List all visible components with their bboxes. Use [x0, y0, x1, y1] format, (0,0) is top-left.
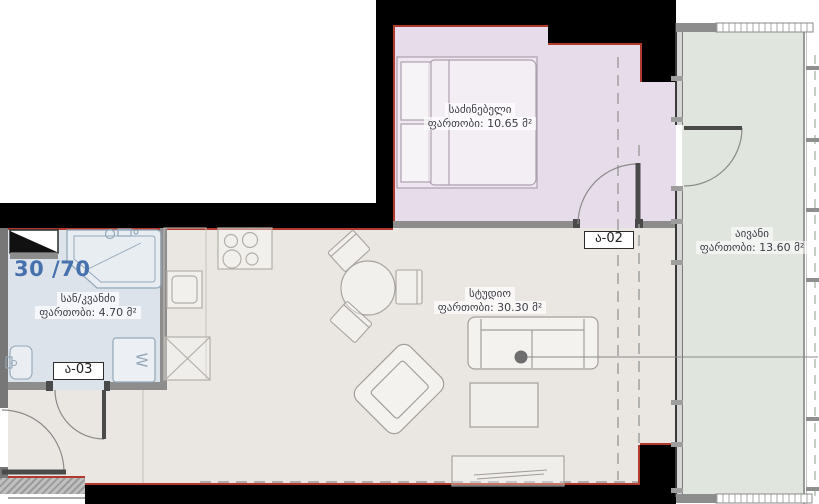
- tv-stand: [452, 456, 564, 486]
- bedroom-name: საძინებელი: [445, 103, 516, 117]
- bedroom-door: [578, 163, 638, 224]
- washer-letter: W: [133, 353, 151, 368]
- balcony-railing: [716, 23, 813, 503]
- ventilation-duct: [10, 230, 58, 259]
- refrigerator: [165, 337, 210, 380]
- bathroom-door: [55, 390, 104, 439]
- armchair: [350, 340, 448, 438]
- kitchen-sink: [167, 271, 202, 308]
- door-tag-a02: ა-02: [584, 231, 634, 249]
- bathroom-name: სან/კვანძი: [57, 292, 120, 306]
- unit-ratio-label: 30 /70: [14, 257, 90, 281]
- balcony-label: აივანი ფართობი: 13.60 მ²: [684, 227, 819, 254]
- coffee-table: [470, 383, 538, 427]
- floor-plan: W საძინებელი ფართობი: 10.65 მ² სტუდიო ფა…: [0, 0, 819, 504]
- toilet: [6, 346, 32, 379]
- studio-name: სტუდიო: [465, 287, 515, 301]
- bedroom-label: საძინებელი ფართობი: 10.65 მ²: [400, 103, 560, 130]
- stove: [218, 228, 272, 269]
- bedroom-area-label: ფართობი: 10.65 მ²: [424, 117, 537, 131]
- sofa: [468, 317, 598, 369]
- washing-machine: W: [113, 338, 155, 382]
- door-tag-a03: ა-03: [53, 362, 104, 380]
- studio-label: სტუდიო ფართობი: 30.30 მ²: [415, 287, 565, 314]
- balcony-name: აივანი: [731, 227, 773, 241]
- balcony-area-label: ფართობი: 13.60 მ²: [696, 241, 809, 255]
- dimension-tick: [806, 66, 819, 491]
- entry-door: [2, 410, 66, 472]
- balcony-door: [684, 128, 742, 186]
- bathroom-label: სან/კვანძი ფართობი: 4.70 მ²: [20, 292, 156, 319]
- bathroom-area-label: ფართობი: 4.70 მ²: [35, 306, 141, 320]
- studio-area-label: ფართობი: 30.30 მ²: [434, 301, 547, 315]
